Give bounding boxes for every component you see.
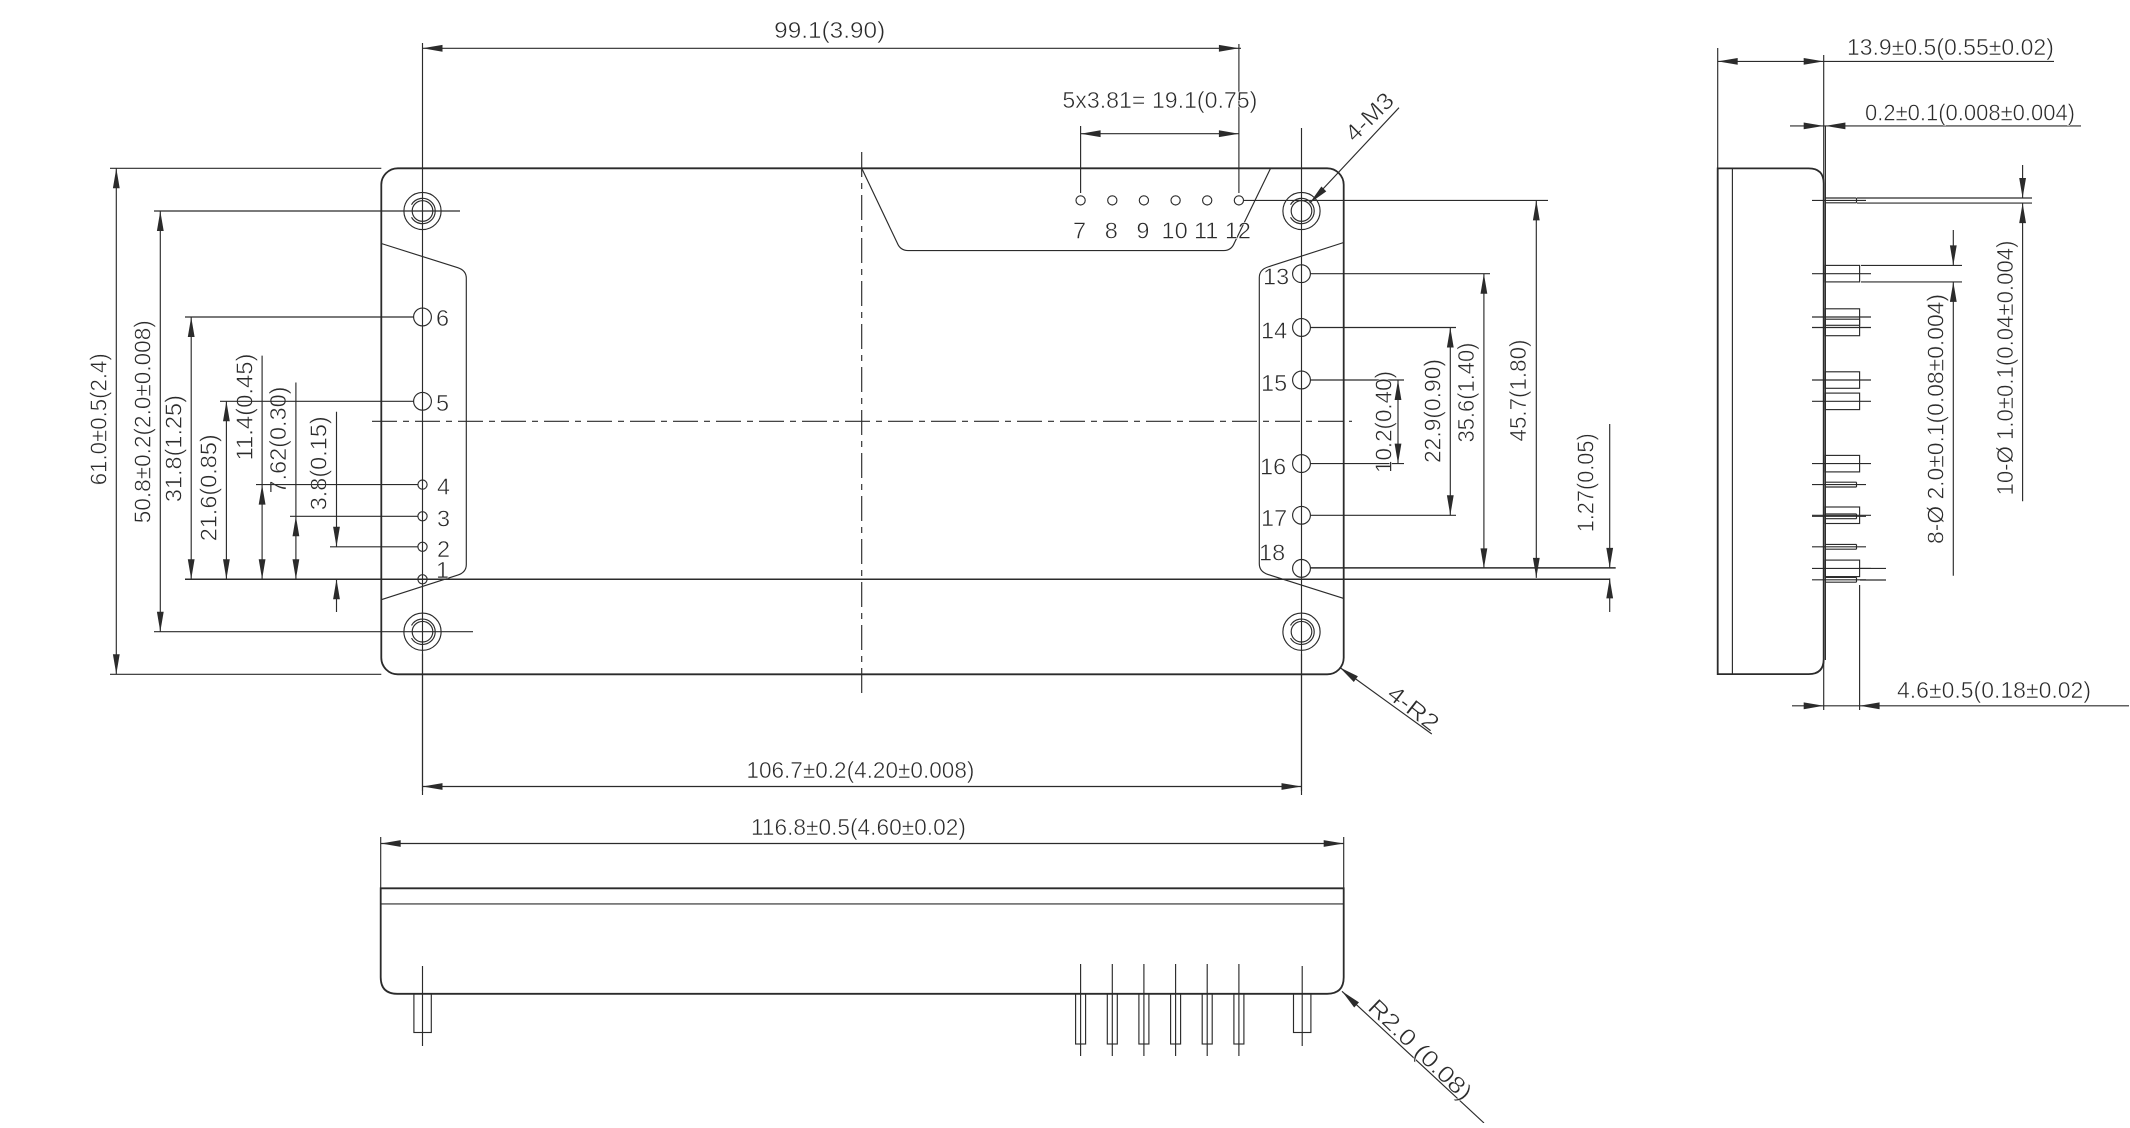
svg-text:45.7(1.80): 45.7(1.80) <box>1505 340 1531 442</box>
svg-text:8: 8 <box>1105 218 1118 244</box>
svg-text:4: 4 <box>437 474 450 500</box>
svg-text:99.1(3.90): 99.1(3.90) <box>774 17 885 43</box>
svg-text:4.6±0.5(0.18±0.02): 4.6±0.5(0.18±0.02) <box>1897 677 2091 703</box>
svg-text:6: 6 <box>436 305 449 331</box>
svg-text:10: 10 <box>1162 218 1188 244</box>
svg-text:3.8(0.15): 3.8(0.15) <box>306 416 332 510</box>
svg-text:61.0±0.5(2.4): 61.0±0.5(2.4) <box>86 353 112 485</box>
svg-text:31.8(1.25): 31.8(1.25) <box>160 395 186 502</box>
svg-text:5x3.81= 19.1(0.75): 5x3.81= 19.1(0.75) <box>1062 87 1257 113</box>
svg-text:14: 14 <box>1261 317 1287 343</box>
svg-text:3: 3 <box>437 505 450 531</box>
svg-text:17: 17 <box>1261 505 1287 531</box>
svg-text:10.2(0.40): 10.2(0.40) <box>1370 371 1396 473</box>
svg-text:11.4(0.45): 11.4(0.45) <box>231 354 257 461</box>
svg-text:11: 11 <box>1194 218 1218 244</box>
svg-text:13.9±0.5(0.55±0.02): 13.9±0.5(0.55±0.02) <box>1847 34 2054 60</box>
svg-text:106.7±0.2(4.20±0.008): 106.7±0.2(4.20±0.008) <box>746 757 974 783</box>
svg-text:13: 13 <box>1263 264 1289 290</box>
svg-text:10-Ø 1.0±0.1(0.04±0.004): 10-Ø 1.0±0.1(0.04±0.004) <box>1992 241 2018 496</box>
svg-text:50.8±0.2(2.0±0.008): 50.8±0.2(2.0±0.008) <box>130 320 156 523</box>
svg-text:35.6(1.40): 35.6(1.40) <box>1453 343 1479 443</box>
svg-text:9: 9 <box>1136 218 1149 244</box>
svg-text:18: 18 <box>1259 540 1285 566</box>
svg-text:22.9(0.90): 22.9(0.90) <box>1419 359 1445 463</box>
svg-text:0.2±0.1(0.008±0.004): 0.2±0.1(0.008±0.004) <box>1865 100 2075 126</box>
svg-text:12: 12 <box>1225 218 1251 244</box>
svg-text:21.6(0.85): 21.6(0.85) <box>196 434 222 541</box>
svg-text:8-Ø 2.0±0.1(0.08±0.004): 8-Ø 2.0±0.1(0.08±0.004) <box>1923 294 1949 544</box>
svg-text:1.27(0.05): 1.27(0.05) <box>1573 433 1599 532</box>
svg-text:7.62(0.30): 7.62(0.30) <box>265 387 291 494</box>
svg-text:5: 5 <box>436 390 449 416</box>
svg-text:16: 16 <box>1260 453 1286 479</box>
svg-text:15: 15 <box>1261 370 1287 396</box>
svg-text:7: 7 <box>1073 218 1086 244</box>
svg-text:116.8±0.5(4.60±0.02): 116.8±0.5(4.60±0.02) <box>751 814 966 840</box>
